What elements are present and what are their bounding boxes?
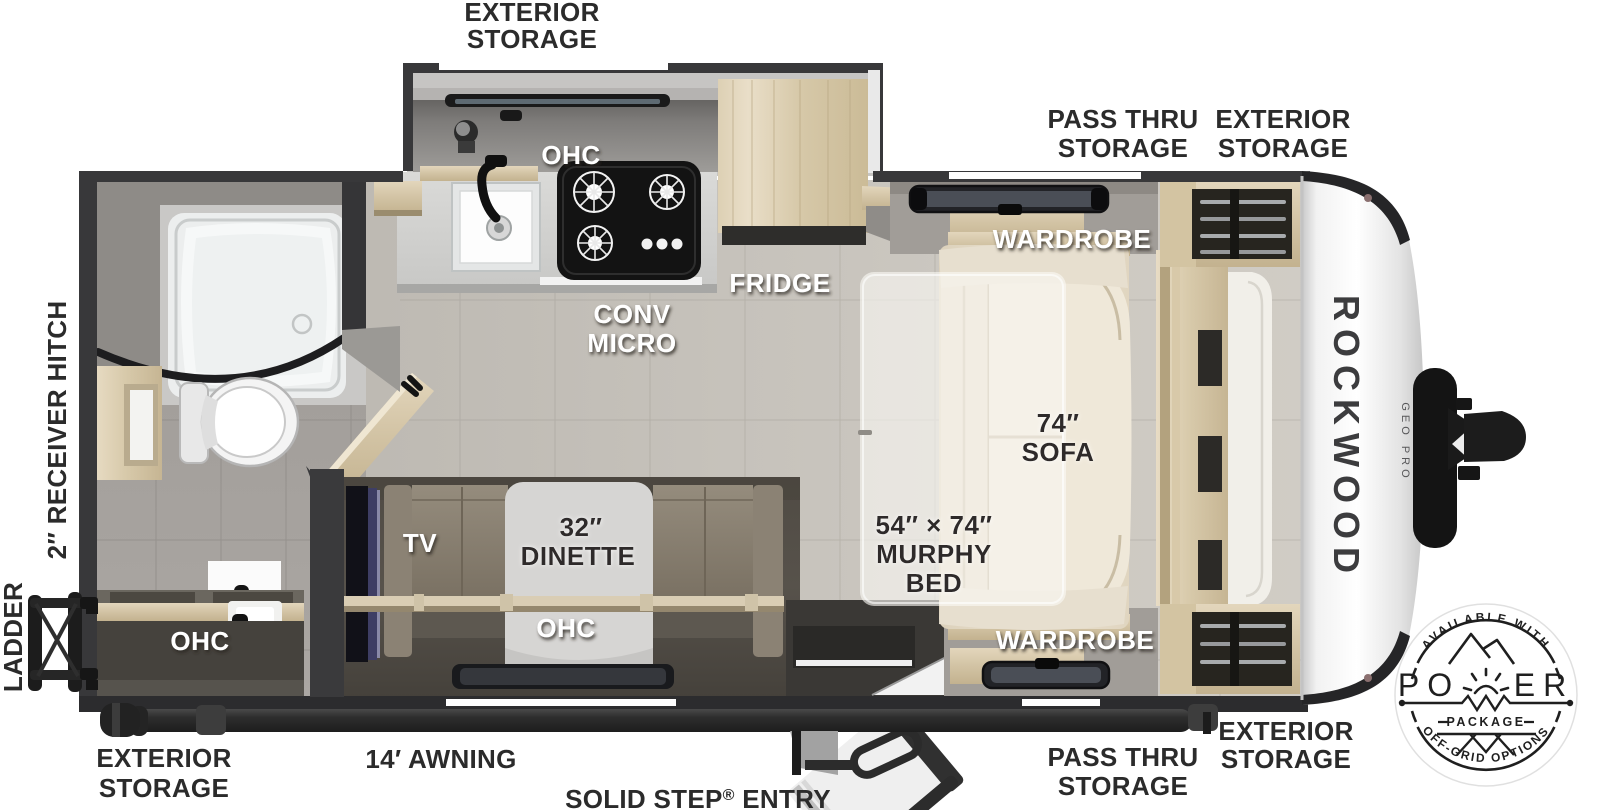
svg-text:DINETTE: DINETTE	[521, 541, 636, 571]
svg-text:STORAGE: STORAGE	[1221, 744, 1351, 774]
svg-text:32″: 32″	[560, 512, 603, 542]
svg-text:54″ × 74″: 54″ × 74″	[876, 510, 993, 540]
svg-text:OHC: OHC	[541, 140, 600, 170]
svg-text:PACKAGE: PACKAGE	[1446, 715, 1525, 729]
svg-text:EXTERIOR: EXTERIOR	[96, 743, 231, 773]
svg-text:74″: 74″	[1037, 408, 1080, 438]
svg-text:ER: ER	[1514, 667, 1574, 703]
svg-text:SOLID STEP® ENTRY: SOLID STEP® ENTRY	[565, 784, 831, 810]
svg-text:GEO PRO: GEO PRO	[1399, 402, 1411, 481]
svg-text:PO: PO	[1398, 667, 1460, 703]
svg-text:EXTERIOR: EXTERIOR	[1215, 104, 1350, 134]
svg-text:TV: TV	[403, 528, 437, 558]
svg-text:STORAGE: STORAGE	[1218, 133, 1348, 163]
svg-text:OHC: OHC	[536, 613, 595, 643]
svg-text:PASS THRU: PASS THRU	[1047, 104, 1198, 134]
svg-text:STORAGE: STORAGE	[1058, 771, 1188, 801]
svg-text:BED: BED	[906, 568, 962, 598]
svg-text:STORAGE: STORAGE	[467, 24, 597, 54]
svg-text:MICRO: MICRO	[587, 328, 676, 358]
svg-text:EXTERIOR: EXTERIOR	[464, 0, 599, 27]
svg-text:WARDROBE: WARDROBE	[996, 625, 1155, 655]
svg-text:WARDROBE: WARDROBE	[993, 224, 1152, 254]
svg-text:14′ AWNING: 14′ AWNING	[365, 744, 516, 774]
svg-text:LADDER: LADDER	[0, 582, 28, 692]
svg-text:CONV: CONV	[593, 299, 670, 329]
svg-text:STORAGE: STORAGE	[1058, 133, 1188, 163]
svg-text:MURPHY: MURPHY	[876, 539, 992, 569]
svg-text:PASS THRU: PASS THRU	[1047, 742, 1198, 772]
svg-text:2″ RECEIVER HITCH: 2″ RECEIVER HITCH	[42, 301, 72, 560]
svg-text:OHC: OHC	[170, 626, 229, 656]
svg-text:FRIDGE: FRIDGE	[729, 268, 830, 298]
svg-text:EXTERIOR: EXTERIOR	[1218, 716, 1353, 746]
svg-text:ROCKWOOD: ROCKWOOD	[1326, 295, 1367, 581]
svg-text:SOFA: SOFA	[1022, 437, 1095, 467]
svg-text:STORAGE: STORAGE	[99, 773, 229, 803]
